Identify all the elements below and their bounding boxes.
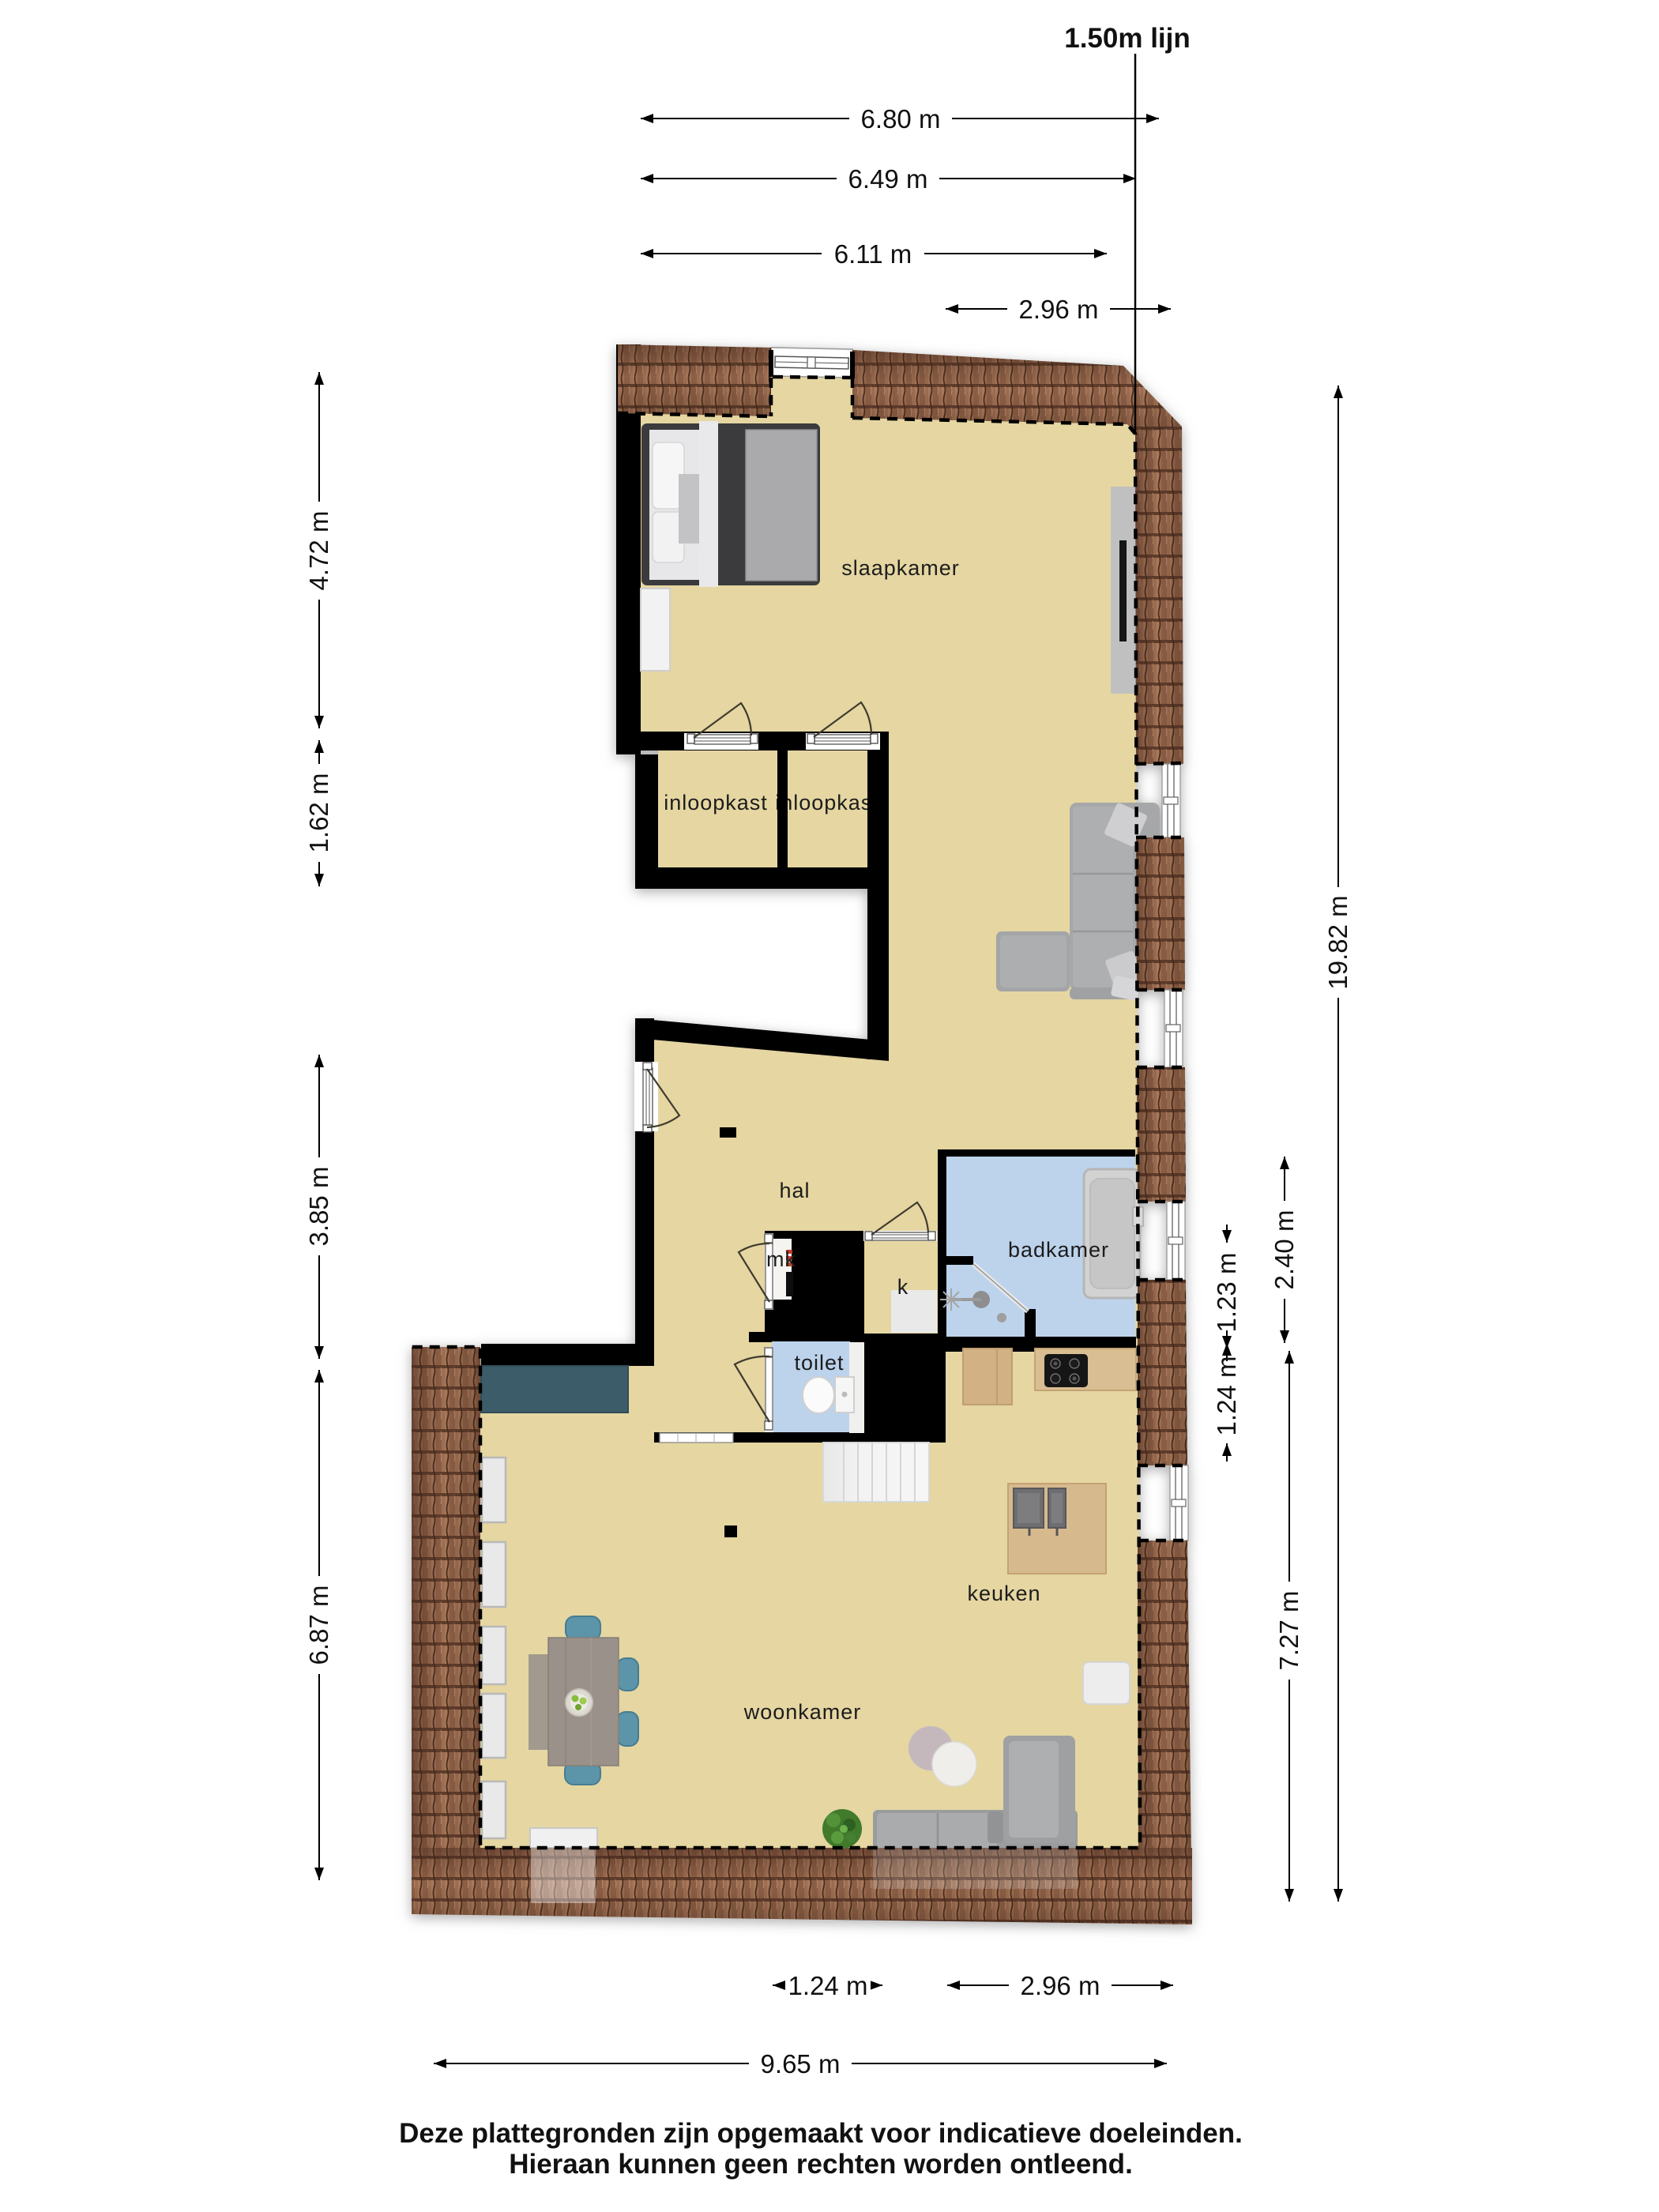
svg-text:6.87 m: 6.87 m [304, 1586, 333, 1665]
svg-text:toilet: toilet [794, 1351, 844, 1375]
svg-text:2.96 m: 2.96 m [1021, 1971, 1100, 2000]
svg-text:6.49 m: 6.49 m [848, 164, 928, 194]
svg-text:6.80 m: 6.80 m [861, 104, 941, 134]
svg-text:woonkamer: woonkamer [743, 1700, 862, 1724]
svg-text:2.96 m: 2.96 m [1019, 295, 1099, 324]
svg-text:inloopkast: inloopkast [775, 791, 879, 814]
svg-text:hal: hal [779, 1179, 810, 1202]
svg-text:3.85 m: 3.85 m [304, 1167, 333, 1247]
svg-text:1.24 m: 1.24 m [788, 1971, 868, 2000]
svg-text:2.40 m: 2.40 m [1270, 1210, 1299, 1290]
svg-text:inloopkast: inloopkast [664, 791, 768, 814]
svg-text:Deze plattegronden zijn opgema: Deze plattegronden zijn opgemaakt voor i… [399, 2118, 1243, 2149]
svg-text:9.65 m: 9.65 m [761, 2049, 841, 2078]
svg-text:1.50m lijn: 1.50m lijn [1064, 23, 1191, 54]
svg-text:1.24 m: 1.24 m [1212, 1356, 1241, 1436]
svg-text:mk: mk [766, 1247, 796, 1271]
svg-text:19.82 m: 19.82 m [1323, 895, 1352, 989]
svg-text:4.72 m: 4.72 m [304, 511, 333, 591]
svg-text:6.11 m: 6.11 m [834, 239, 912, 269]
svg-text:badkamer: badkamer [1008, 1238, 1109, 1262]
svg-text:7.27 m: 7.27 m [1274, 1591, 1303, 1671]
svg-text:k: k [897, 1275, 909, 1299]
svg-text:keuken: keuken [967, 1582, 1040, 1605]
svg-text:1.62 m: 1.62 m [304, 773, 333, 853]
svg-text:Hieraan kunnen geen rechten wo: Hieraan kunnen geen rechten worden ontle… [509, 2149, 1133, 2180]
svg-text:slaapkamer: slaapkamer [841, 556, 960, 580]
svg-text:1.23 m: 1.23 m [1212, 1253, 1241, 1333]
